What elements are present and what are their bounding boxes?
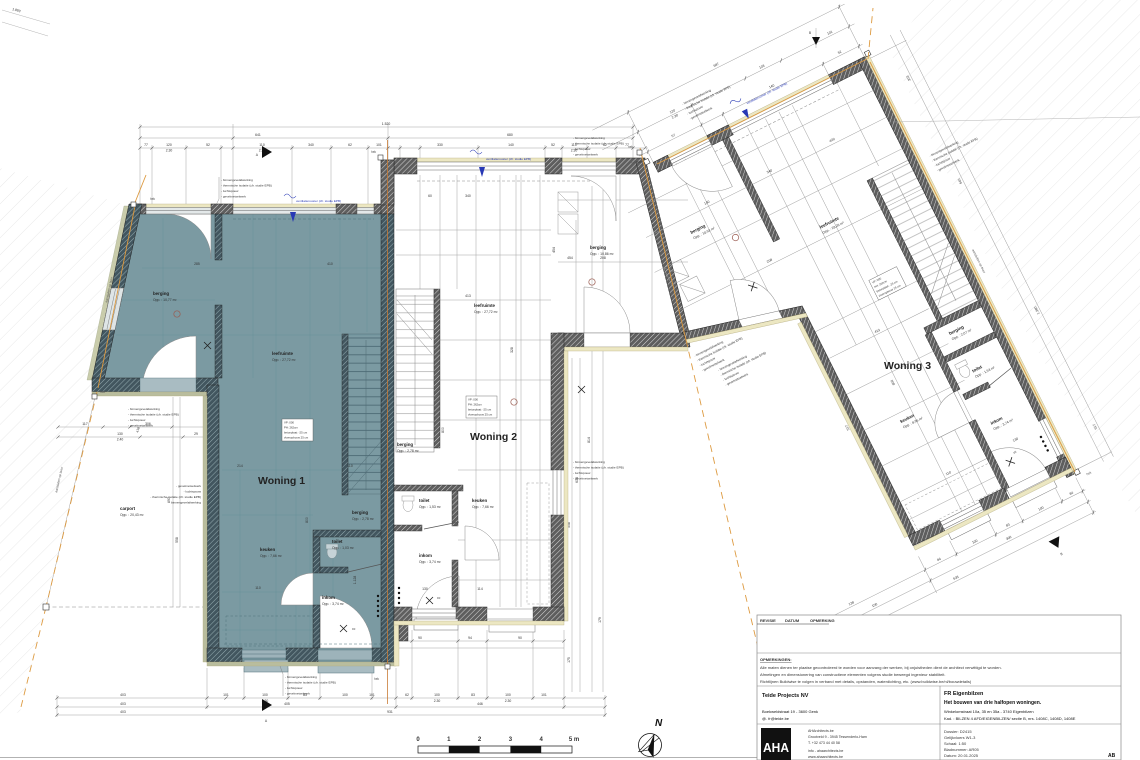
svg-text:- binnengevelafwerking: - binnengevelafwerking <box>221 178 253 182</box>
svg-text:101: 101 <box>223 693 229 697</box>
svg-text:- luchtspouw: - luchtspouw <box>128 418 146 422</box>
svg-text:OPMERKING: OPMERKING <box>810 618 835 623</box>
svg-text:- thermische isolatie (cfr. st: - thermische isolatie (cfr. studie EPB) <box>285 681 336 685</box>
svg-text:454: 454 <box>567 256 573 260</box>
svg-text:- binnengevelafwerking: - binnengevelafwerking <box>128 407 160 411</box>
svg-text:285: 285 <box>194 262 200 266</box>
svg-text:90: 90 <box>418 636 422 640</box>
svg-text:Woning 1: Woning 1 <box>258 475 305 487</box>
svg-text:29: 29 <box>194 432 198 436</box>
svg-text:Schaal: 1:50: Schaal: 1:50 <box>944 741 967 746</box>
svg-text:114: 114 <box>477 587 483 591</box>
svg-text:Bladnummer: AR05: Bladnummer: AR05 <box>944 747 979 752</box>
svg-text:Richtlijnen Buildwise te volge: Richtlijnen Buildwise te volgen in verba… <box>760 679 972 684</box>
svg-text:PH: 262cm: PH: 262cm <box>284 426 299 430</box>
svg-text:vloeropbouw 25 cm: vloeropbouw 25 cm <box>284 436 309 440</box>
svg-text:Teide Projects NV: Teide Projects NV <box>762 693 809 699</box>
svg-text:PH: 262cm: PH: 262cm <box>468 403 483 407</box>
svg-text:hek: hek <box>374 677 380 681</box>
svg-text:Grootveld 9 - 3945 Tessenderlo: Grootveld 9 - 3945 Tessenderlo-Ham <box>808 735 867 739</box>
svg-text:hek: hek <box>150 197 156 201</box>
svg-text:Datum: 20.01.2025: Datum: 20.01.2025 <box>944 753 979 758</box>
svg-text:ventilatierooster (cfr. studie: ventilatierooster (cfr. studie EPB) <box>296 199 341 203</box>
svg-text:Opp. : 2,78 m²: Opp. : 2,78 m² <box>397 449 420 453</box>
svg-text:vloeropbouw 25 cm: vloeropbouw 25 cm <box>468 413 493 417</box>
svg-text:- thermische isolatie (cfr. st: - thermische isolatie (cfr. studie EPB) <box>573 142 624 146</box>
svg-text:Woning 2: Woning 2 <box>470 431 517 443</box>
svg-text:Woning 3: Woning 3 <box>884 360 931 372</box>
svg-text:Opp. : 7,66 m²: Opp. : 7,66 m² <box>472 505 495 509</box>
svg-text:- binnengevelafwerking: - binnengevelafwerking <box>285 675 317 679</box>
svg-text:±0: ±0 <box>352 627 356 631</box>
svg-text:carport: carport <box>120 506 136 511</box>
svg-text:toilet: toilet <box>332 539 343 544</box>
svg-text:- gevelmetselwerk: - gevelmetselwerk <box>128 424 153 428</box>
svg-text:betonplaat: -25 cm: betonplaat: -25 cm <box>284 431 308 435</box>
svg-text:454: 454 <box>552 247 556 253</box>
svg-text:- thermische isolatie (cfr. st: - thermische isolatie (cfr. studie EPB) <box>150 495 201 499</box>
svg-text:Alle maten dienen ter plaatse: Alle maten dienen ter plaatse gecontrole… <box>760 665 1002 670</box>
svg-text:100: 100 <box>505 693 511 697</box>
svg-text:info - ahaarchitects.be: info - ahaarchitects.be <box>808 749 843 753</box>
svg-text:800: 800 <box>441 427 445 433</box>
svg-text:- luchtspouw: - luchtspouw <box>184 490 202 494</box>
svg-text:5 m: 5 m <box>569 737 579 743</box>
svg-text:52: 52 <box>551 143 555 147</box>
svg-text:DATUM: DATUM <box>785 618 800 623</box>
svg-text:2.40: 2.40 <box>117 438 124 442</box>
svg-text:@. fr@teide.be: @. fr@teide.be <box>762 716 790 721</box>
svg-text:hek: hek <box>100 390 106 394</box>
svg-text:100: 100 <box>434 693 440 697</box>
svg-text:94: 94 <box>468 636 472 640</box>
svg-text:403: 403 <box>120 693 126 697</box>
svg-text:- gevelmetselwerk: - gevelmetselwerk <box>176 484 201 488</box>
svg-text:Opp. : 27,72 m²: Opp. : 27,72 m² <box>272 358 296 362</box>
svg-text:Opp. : 10,77 m²: Opp. : 10,77 m² <box>153 298 177 302</box>
svg-text:340: 340 <box>465 194 471 198</box>
svg-text:VP: 000: VP: 000 <box>468 398 478 402</box>
svg-text:Opp. : 2,78 m²: Opp. : 2,78 m² <box>352 517 375 521</box>
svg-text:403: 403 <box>120 710 126 714</box>
svg-text:leefruimte: leefruimte <box>272 351 294 356</box>
svg-text:ventilatierooster (cfr. studie: ventilatierooster (cfr. studie EPB) <box>486 157 531 161</box>
svg-text:Opp. : 1,03 m²: Opp. : 1,03 m² <box>332 546 355 550</box>
svg-text:FR Eigenbilzen: FR Eigenbilzen <box>944 691 984 697</box>
svg-text:Opp. : 7,66 m²: Opp. : 7,66 m² <box>260 554 283 558</box>
svg-text:berging: berging <box>153 291 169 296</box>
svg-text:Boekweldstraat 19 - 3600 Genk: Boekweldstraat 19 - 3600 Genk <box>762 709 818 714</box>
svg-text:403: 403 <box>120 702 126 706</box>
svg-text:hek: hek <box>371 150 377 154</box>
svg-text:101: 101 <box>376 143 382 147</box>
svg-text:100: 100 <box>262 693 268 697</box>
svg-text:- binnengevelafwerking: - binnengevelafwerking <box>169 501 201 505</box>
svg-text:140: 140 <box>508 143 514 147</box>
svg-text:- gevelmetselwerk: - gevelmetselwerk <box>573 477 598 481</box>
svg-text:413: 413 <box>465 294 471 298</box>
svg-text:410: 410 <box>327 262 333 266</box>
svg-text:Opp. : 3,74 m²: Opp. : 3,74 m² <box>419 560 442 564</box>
svg-text:100: 100 <box>342 693 348 697</box>
svg-text:AB: AB <box>1108 753 1116 759</box>
svg-text:keuken: keuken <box>472 498 487 503</box>
svg-text:800: 800 <box>305 517 309 523</box>
svg-text:101: 101 <box>541 693 547 697</box>
svg-text:- thermische isolatie (cfr. st: - thermische isolatie (cfr. studie EPB) <box>573 466 624 470</box>
svg-text:60: 60 <box>428 194 432 198</box>
svg-text:130: 130 <box>117 432 123 436</box>
svg-text:- binnengevelafwerking: - binnengevelafwerking <box>573 460 605 464</box>
svg-text:931: 931 <box>387 710 393 714</box>
svg-text:101: 101 <box>369 693 375 697</box>
svg-text:62: 62 <box>348 143 352 147</box>
svg-text:betonplaat: -25 cm: betonplaat: -25 cm <box>468 408 492 412</box>
svg-text:OPMERKINGEN:: OPMERKINGEN: <box>760 657 792 662</box>
svg-text:175: 175 <box>567 657 571 663</box>
svg-text:- gevelmetselwerk: - gevelmetselwerk <box>285 692 310 696</box>
svg-text:330: 330 <box>437 143 443 147</box>
svg-text:berging: berging <box>590 245 606 250</box>
svg-text:VP: 000: VP: 000 <box>284 421 294 425</box>
svg-text:1.520: 1.520 <box>382 122 391 126</box>
svg-text:179: 179 <box>598 617 602 623</box>
svg-text:Kad. : BILZEN 4 AFD/EIGENBILZE: Kad. : BILZEN 4 AFD/EIGENBILZEN/ sectie … <box>944 716 1076 721</box>
svg-text:Gelijkvloers W1-3: Gelijkvloers W1-3 <box>944 735 976 740</box>
svg-text:446: 446 <box>477 702 483 706</box>
svg-text:83: 83 <box>471 693 475 697</box>
svg-text:120: 120 <box>166 143 172 147</box>
svg-text:Afmetingen en dimensionering v: Afmetingen en dimensionering van constru… <box>760 672 945 677</box>
svg-text:- binnengevelafwerking: - binnengevelafwerking <box>573 136 605 140</box>
svg-text:AHArchitects.be: AHArchitects.be <box>808 729 834 733</box>
svg-text:inkom: inkom <box>419 553 432 558</box>
svg-text:inkom: inkom <box>322 595 335 600</box>
svg-text:340: 340 <box>308 143 314 147</box>
svg-text:AHA: AHA <box>763 740 790 755</box>
svg-text:558: 558 <box>175 537 179 543</box>
svg-text:hek: hek <box>628 145 634 149</box>
svg-text:62: 62 <box>405 693 409 697</box>
svg-text:- gevelmetselwerk: - gevelmetselwerk <box>573 153 598 157</box>
svg-text:328: 328 <box>510 347 514 353</box>
svg-text:www.ahaarchitects.be: www.ahaarchitects.be <box>808 755 843 759</box>
svg-text:117: 117 <box>82 422 88 426</box>
svg-text:- gevelmetselwerk: - gevelmetselwerk <box>221 195 246 199</box>
svg-text:814: 814 <box>587 437 591 443</box>
svg-text:2.30: 2.30 <box>166 149 173 153</box>
svg-text:berging: berging <box>352 510 368 515</box>
svg-text:keuken: keuken <box>260 547 275 552</box>
svg-text:leefruimte: leefruimte <box>474 303 496 308</box>
svg-text:- thermische isolatie (cfr. st: - thermische isolatie (cfr. studie EPB) <box>221 184 272 188</box>
svg-text:Opp. : 27,72 m²: Opp. : 27,72 m² <box>474 310 498 314</box>
svg-text:- luchtspouw: - luchtspouw <box>573 471 591 475</box>
svg-text:- luchtspouw: - luchtspouw <box>221 189 239 193</box>
svg-text:Dossier: D2415: Dossier: D2415 <box>944 729 972 734</box>
svg-text:Opp. : 1,53 m²: Opp. : 1,53 m² <box>419 505 442 509</box>
svg-text:Opp. : 20,43 m²: Opp. : 20,43 m² <box>120 513 144 517</box>
svg-text:toilet: toilet <box>419 498 430 503</box>
svg-text:Winkelomstraat 10a, 35 en 35a: Winkelomstraat 10a, 35 en 35a - 3740 Eig… <box>944 709 1034 714</box>
svg-text:52: 52 <box>206 143 210 147</box>
svg-text:- thermische isolatie (cfr. st: - thermische isolatie (cfr. studie EPB) <box>128 413 179 417</box>
svg-text:1.128: 1.128 <box>353 576 357 585</box>
svg-text:90: 90 <box>518 636 522 640</box>
svg-text:N: N <box>655 718 663 729</box>
svg-text:680: 680 <box>507 133 513 137</box>
svg-text:214: 214 <box>237 464 243 468</box>
svg-text:641: 641 <box>255 133 261 137</box>
svg-text:- luchtspouw: - luchtspouw <box>285 686 303 690</box>
svg-text:2.30: 2.30 <box>505 699 512 703</box>
svg-text:Opp. : 10,86 m²: Opp. : 10,86 m² <box>590 252 614 256</box>
svg-text:berging: berging <box>397 442 413 447</box>
svg-text:Het bouwen van drie halfopen w: Het bouwen van drie halfopen woningen. <box>944 700 1042 706</box>
svg-text:208: 208 <box>600 256 606 260</box>
svg-text:T. +32 473 44 40 58: T. +32 473 44 40 58 <box>808 741 840 745</box>
svg-text:405: 405 <box>284 702 290 706</box>
svg-text:±0: ±0 <box>437 596 441 600</box>
svg-text:REVISIE: REVISIE <box>760 618 776 623</box>
svg-text:77: 77 <box>144 143 148 147</box>
svg-text:110: 110 <box>255 586 261 590</box>
svg-text:- luchtspouw: - luchtspouw <box>573 147 591 151</box>
svg-text:2.30: 2.30 <box>434 699 441 703</box>
svg-text:Opp. : 3,74 m²: Opp. : 3,74 m² <box>322 602 345 606</box>
